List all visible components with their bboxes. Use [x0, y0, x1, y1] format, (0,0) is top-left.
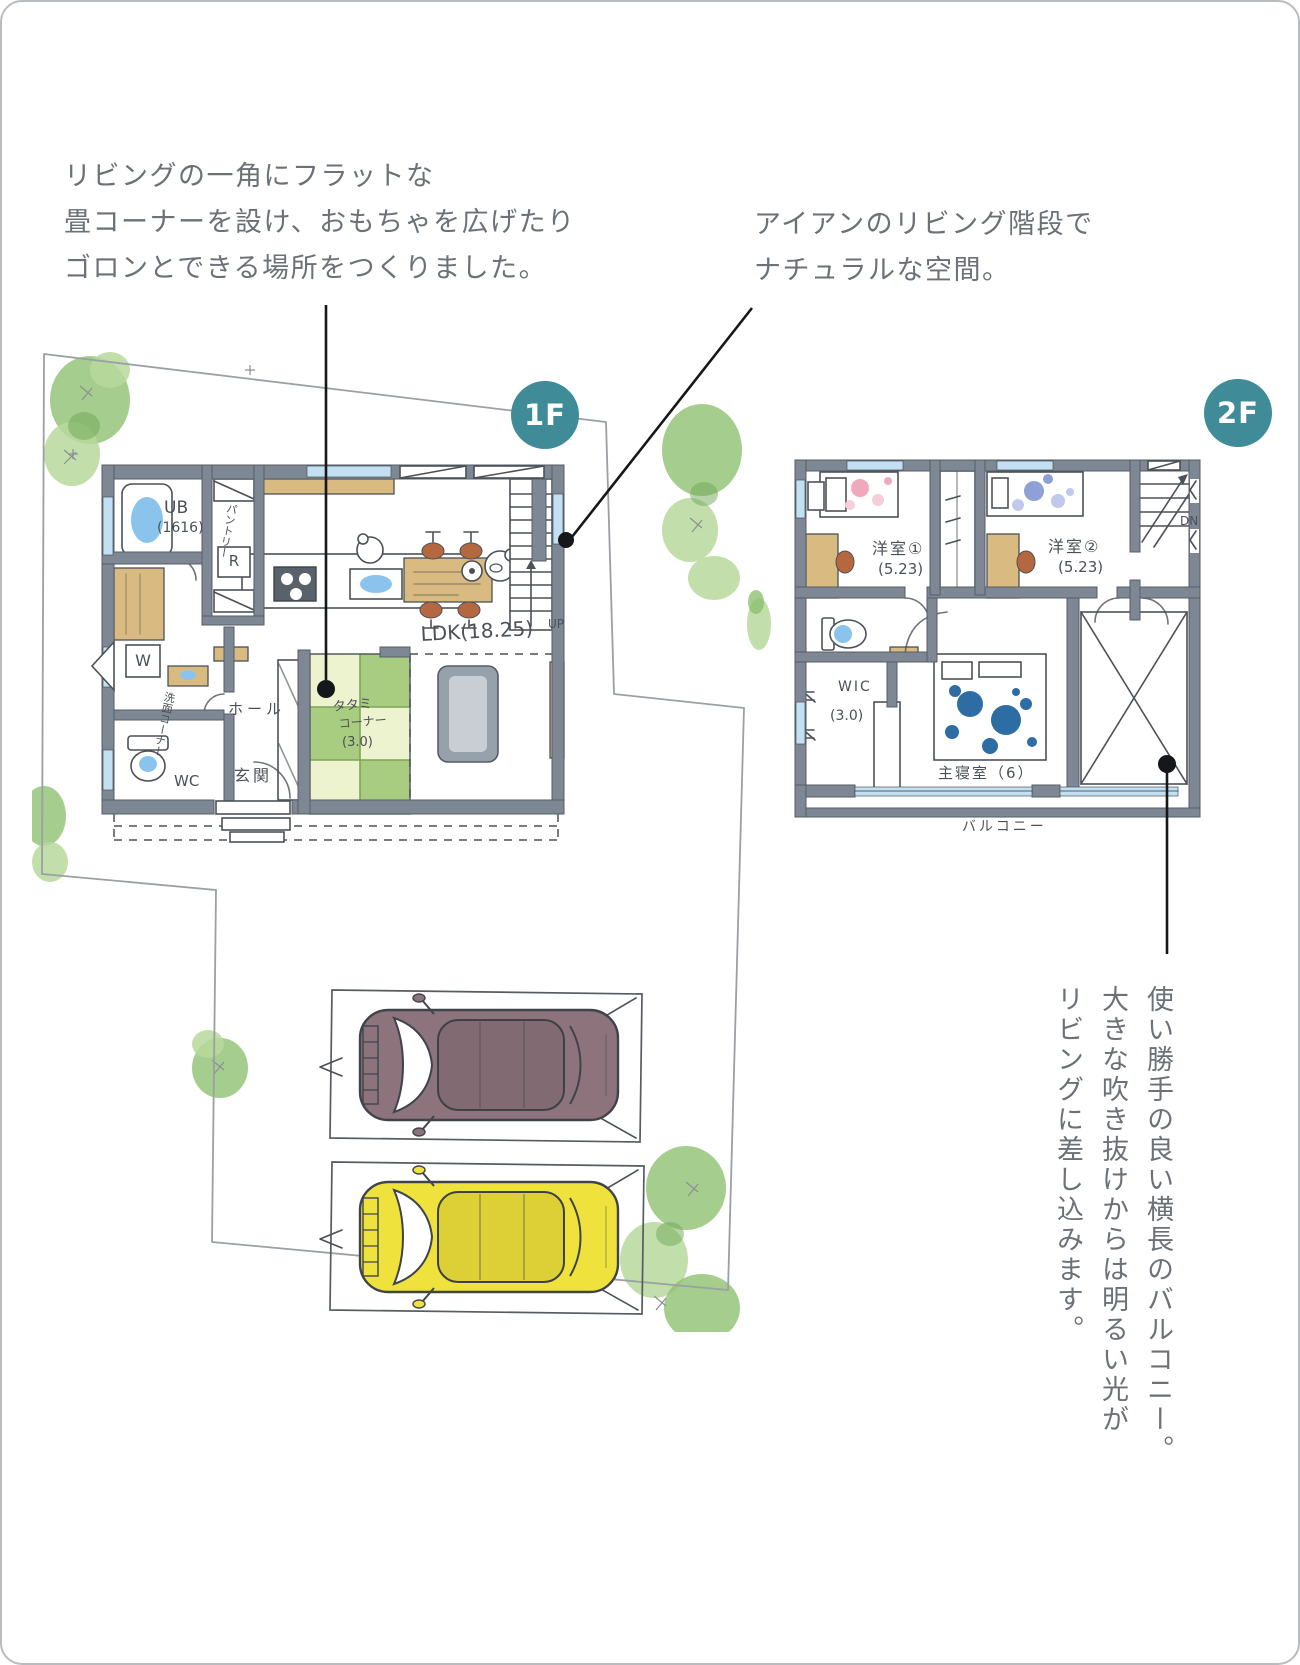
- note-tatami-line1: リビングの一角にフラットな: [64, 154, 576, 200]
- tree-right: [662, 404, 742, 600]
- label-hall: ホール: [228, 698, 285, 719]
- tree-bottom-left: [192, 1030, 248, 1098]
- stairs-2f: [1140, 474, 1189, 547]
- site-plan-1f: [32, 342, 747, 1332]
- label-ub-size: (1616): [157, 520, 204, 536]
- label-wc: WC: [174, 772, 199, 790]
- label-tatami-size: (3.0): [342, 735, 373, 750]
- note-balcony: 使い勝手の良い横長のバルコニー。 大きな吹き抜けからは明るい光が リビングに差し…: [1045, 985, 1180, 1485]
- bed-master: [934, 654, 1046, 760]
- label-master: 主寝室（6）: [938, 762, 1035, 783]
- bed-bedroom2: [987, 472, 1083, 516]
- car-yellow: [360, 1166, 618, 1308]
- label-bedroom2: 洋室②: [1048, 533, 1100, 557]
- plan-2f: [747, 342, 1212, 862]
- note-balcony-line2: 大きな吹き抜けからは明るい光が: [1090, 985, 1135, 1485]
- tree-bottom-right: [620, 1146, 740, 1332]
- floorplan-page: 1F 2F リビングの一角にフラットな 畳コーナーを設け、おもちゃを広げたり ゴ…: [0, 0, 1300, 1665]
- figure-sketch-1: [357, 534, 383, 563]
- label-up: UP: [548, 617, 564, 631]
- label-entrance: 玄関: [234, 762, 272, 786]
- toilet-2f: [822, 618, 866, 650]
- floor1-badge: 1F: [511, 381, 579, 449]
- label-washer: W: [126, 651, 160, 670]
- note-tatami: リビングの一角にフラットな 畳コーナーを設け、おもちゃを広げたり ゴロンとできる…: [64, 154, 576, 292]
- bed-bedroom1: [820, 472, 898, 517]
- label-wic-size: (3.0): [830, 708, 863, 724]
- note-stairs: アイアンのリビング階段で ナチュラルな空間。: [754, 202, 1094, 294]
- label-bedroom1: 洋室①: [872, 535, 924, 559]
- note-stairs-line2: ナチュラルな空間。: [754, 248, 1094, 294]
- label-bedroom1-size: (5.23): [878, 560, 923, 578]
- tree-2f: [747, 590, 771, 650]
- note-stairs-line1: アイアンのリビング階段で: [754, 202, 1094, 248]
- floor1-badge-label: 1F: [524, 398, 566, 432]
- tree-left-mid: [32, 786, 68, 882]
- label-ub: UB: [164, 498, 188, 518]
- label-bedroom2-size: (5.23): [1058, 558, 1103, 576]
- note-tatami-line3: ゴロンとできる場所をつくりました。: [64, 246, 576, 292]
- label-dn: DN: [1180, 514, 1198, 528]
- note-balcony-line3: リビングに差し込みます。: [1045, 985, 1090, 1485]
- car-brown: [360, 994, 618, 1136]
- floor2-badge: 2F: [1204, 379, 1272, 447]
- label-balcony: バルコニー: [962, 816, 1047, 836]
- void-atrium: [1081, 612, 1187, 784]
- label-wic: WIC: [838, 679, 872, 695]
- label-fridge: R: [218, 552, 250, 570]
- sofa: [438, 666, 498, 762]
- note-balcony-line1: 使い勝手の良い横長のバルコニー。: [1135, 985, 1180, 1485]
- tatami-corner: [310, 654, 410, 814]
- note-tatami-line2: 畳コーナーを設け、おもちゃを広げたり: [64, 200, 576, 246]
- floor2-badge-label: 2F: [1217, 396, 1259, 430]
